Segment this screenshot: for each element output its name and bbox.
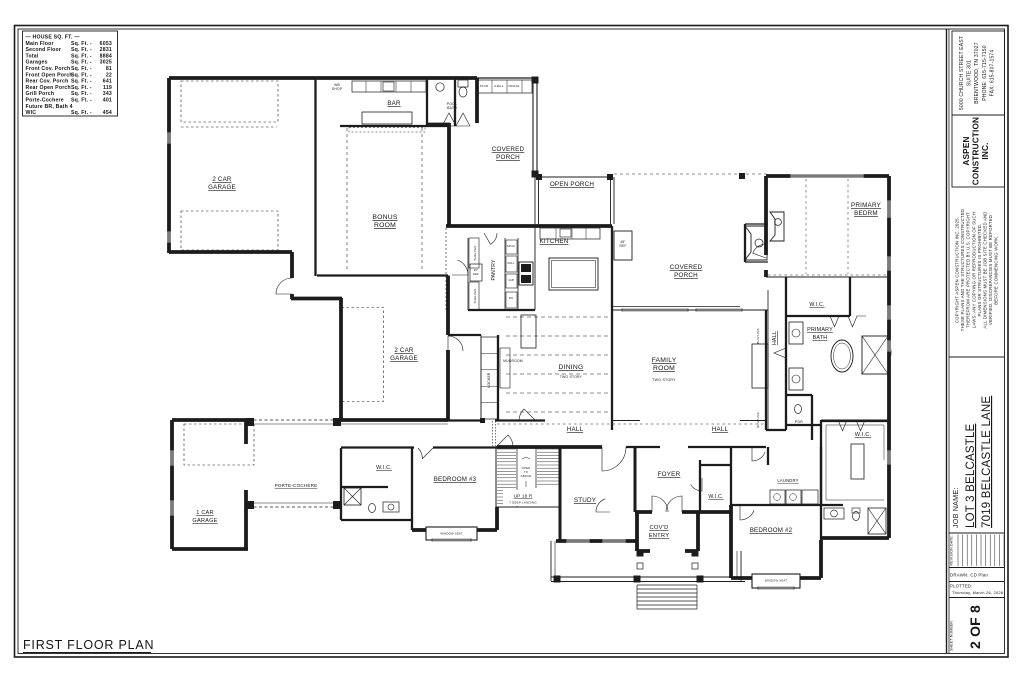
svg-text:Front Cov. Porch: Front Cov. Porch [26,66,71,72]
svg-text:PRIMARY: PRIMARY [851,202,882,209]
svg-text:81: 81 [106,66,112,72]
svg-text:2 CAR: 2 CAR [394,347,414,354]
svg-text:CAB: CAB [508,279,514,282]
svg-text:FAMILY: FAMILY [652,357,677,364]
svg-text:Sq. Ft. -: Sq. Ft. - [71,98,92,104]
svg-text:PLOTTED:: PLOTTED: [950,584,973,589]
svg-text:Sq. Ft. -: Sq. Ft. - [71,91,92,97]
svg-text:PHONE: 615-715-7150: PHONE: 615-715-7150 [982,45,988,101]
svg-text:PIE: PIE [509,297,514,300]
svg-text:GARAGE: GARAGE [192,518,217,524]
svg-text:SHELVES: SHELVES [473,245,477,260]
svg-text:Rear Open Porch: Rear Open Porch [26,85,71,91]
svg-text:22: 22 [106,72,112,78]
svg-text:454: 454 [103,110,112,116]
svg-text:641: 641 [103,79,112,85]
svg-text:2 OF 8: 2 OF 8 [967,605,983,649]
svg-text:ENTRY: ENTRY [649,533,670,539]
svg-text:THEREFROM ARE PROTECTED BY U.S: THEREFROM ARE PROTECTED BY U.S. COPYRIGH… [966,212,971,328]
svg-text:ALL DIMENSIONS MUST BE JOB SIT: ALL DIMENSIONS MUST BE JOB SITE CHECKED … [983,211,988,328]
svg-text:— HOUSE SQ. FT. —: — HOUSE SQ. FT. — [26,35,81,41]
svg-text:SUITE 301: SUITE 301 [967,60,973,86]
svg-text:LOCKER: LOCKER [487,372,491,387]
svg-text:6053: 6053 [100,41,112,47]
svg-text:Porte-Cochere: Porte-Cochere [26,98,64,104]
svg-text:WINDOW SEAT: WINDOW SEAT [765,579,787,583]
svg-text:SHEET NUMBER:: SHEET NUMBER: [950,620,954,651]
svg-text:ROOM: ROOM [374,222,396,229]
svg-text:THESE PLANS AND THE STRUCTURES: THESE PLANS AND THE STRUCTURES CONSTRUCT… [960,209,965,331]
svg-text:TWO STORY: TWO STORY [652,378,676,382]
svg-text:COVERED: COVERED [492,146,525,153]
svg-text:GARAGE: GARAGE [208,184,236,191]
svg-text:DRAWN: CD Plan: DRAWN: CD Plan [950,573,988,578]
svg-text:Sq. Ft. -: Sq. Ft. - [71,110,92,116]
svg-text:WINDOW SEAT: WINDOW SEAT [440,532,462,536]
svg-text:BUILT-INS: BUILT-INS [756,412,760,427]
svg-text:Sq. Ft. -: Sq. Ft. - [71,47,92,53]
svg-text:Front Open Porch: Front Open Porch [26,72,73,78]
svg-text:FRIDGE: FRIDGE [509,84,520,88]
svg-text:STOR: STOR [480,84,489,88]
svg-text:Future BR, Bath 4: Future BR, Bath 4 [26,104,73,110]
svg-text:Second Floor: Second Floor [26,47,62,53]
svg-text:BAR: BAR [387,100,401,107]
svg-text:HALL: HALL [712,426,729,433]
svg-text:ASPEN: ASPEN [962,136,971,165]
svg-text:FIRST FLOOR PLAN: FIRST FLOOR PLAN [23,638,154,652]
svg-text:WALL: WALL [507,262,515,265]
svg-text:PANTRY: PANTRY [491,259,497,280]
svg-text:COV’D: COV’D [649,525,668,531]
svg-text:2831: 2831 [100,47,112,53]
svg-text:BEDROOM #3: BEDROOM #3 [434,476,477,483]
svg-text:PORTE-COCHERE: PORTE-COCHERE [275,483,318,488]
svg-text:8884: 8884 [100,53,112,59]
svg-text:LOT 3 BELCASTLE: LOT 3 BELCASTLE [965,423,977,528]
svg-text:Sq. Ft. -: Sq. Ft. - [71,85,92,91]
svg-text:KITCHEN: KITCHEN [539,238,568,245]
svg-text:Total: Total [26,53,39,59]
svg-text:Main Floor: Main Floor [26,41,54,47]
svg-text:401: 401 [103,98,112,104]
svg-text:SHOP: SHOP [332,87,343,91]
svg-text:COVERED: COVERED [670,264,703,271]
svg-text:Sq. Ft. -: Sq. Ft. - [71,72,92,78]
svg-text:BEDRM: BEDRM [854,210,878,217]
svg-text:VERIFIED. DISCREPANCIES MUST B: VERIFIED. DISCREPANCIES MUST BE REPORTED [988,215,993,325]
svg-text:LAUNDRY: LAUNDRY [777,478,798,483]
svg-text:BATH: BATH [447,106,457,110]
svg-text:1 CAR: 1 CAR [196,510,213,516]
svg-text:Sq. Ft. -: Sq. Ft. - [71,79,92,85]
svg-text:2 CAR: 2 CAR [212,176,232,183]
svg-text:MUDROOM: MUDROOM [503,359,523,363]
svg-text:COPYRIGHT ASPEN CONSTRUCTION I: COPYRIGHT ASPEN CONSTRUCTION INC. 2025. [955,217,960,323]
svg-text:PORCH: PORCH [496,154,520,161]
svg-text:FOYER: FOYER [658,471,681,478]
svg-text:SPICE: SPICE [507,245,515,248]
svg-text:OPEN PORCH: OPEN PORCH [550,181,595,188]
svg-text:BEDROOM #2: BEDROOM #2 [750,527,793,534]
svg-text:119: 119 [103,85,112,91]
svg-text:7 DEEP LANDING: 7 DEEP LANDING [509,501,537,505]
svg-text:GARAGE: GARAGE [390,355,418,362]
svg-text:BONUS: BONUS [372,214,397,221]
svg-text:Thursday, March 26, 2026: Thursday, March 26, 2026 [952,590,1004,595]
svg-text:STUDY: STUDY [574,497,597,504]
svg-text:FAX: 615-807-1574: FAX: 615-807-1574 [989,50,995,97]
svg-text:UP 18 R: UP 18 R [514,494,533,499]
svg-text:WIC: WIC [26,110,37,116]
svg-text:W.I.C.: W.I.C. [855,432,872,438]
svg-text:DINING: DINING [559,364,584,371]
svg-text:Grill Porch: Grill Porch [26,91,55,97]
svg-text:Rear Cov. Porch: Rear Cov. Porch [26,79,69,85]
svg-text:Sq. Ft. -: Sq. Ft. - [71,41,92,47]
svg-text:SHELVES: SHELVES [473,288,477,303]
svg-text:BEFORE COMMENCING WORK.: BEFORE COMMENCING WORK. [994,235,999,305]
svg-text:INC.: INC. [981,142,990,159]
svg-text:LAWS. ANY COPYING OR REPRODUCT: LAWS. ANY COPYING OR REPRODUCTION OF SUC… [971,212,976,328]
svg-text:HALL: HALL [567,426,584,433]
svg-text:CONSTRUCTION: CONSTRUCTION [972,117,981,185]
svg-text:W.I.C.: W.I.C. [809,302,824,308]
svg-text:BRENTWOOD, TN 37027: BRENTWOOD, TN 37027 [974,42,980,104]
svg-text:HALL: HALL [772,331,778,345]
svg-text:Sq. Ft. -: Sq. Ft. - [71,60,92,66]
svg-text:REF: REF [620,244,627,248]
svg-text:TWO STORY: TWO STORY [560,375,583,379]
svg-text:REF: REF [473,272,479,276]
svg-text:ROOM: ROOM [653,365,675,372]
svg-text:ABOVE: ABOVE [521,474,532,478]
svg-text:PDR: PDR [795,420,803,424]
svg-text:Garages: Garages [26,60,48,66]
svg-text:PLANS OR STRUCTURES IS PROHIBI: PLANS OR STRUCTURES IS PROHIBITED. [977,224,982,317]
svg-text:343: 343 [103,91,112,97]
svg-text:W.I.C.: W.I.C. [708,494,723,500]
svg-text:BUILT-INS: BUILT-INS [756,328,760,343]
svg-text:PORCH: PORCH [674,272,698,279]
svg-text:3025: 3025 [100,60,112,66]
svg-text:Sq. Ft. -: Sq. Ft. - [71,53,92,59]
svg-text:GRILL: GRILL [494,84,504,88]
svg-text:PRIMARY: PRIMARY [807,327,833,333]
svg-text:W.I.C.: W.I.C. [376,465,392,471]
svg-text:5000 CHURCH STREET EAST: 5000 CHURCH STREET EAST [959,36,965,110]
svg-text:REVISION DATE:: REVISION DATE: [950,535,954,566]
svg-text:7019 BELCASTLE LANE: 7019 BELCASTLE LANE [981,396,993,528]
svg-text:Sq. Ft. -: Sq. Ft. - [71,66,92,72]
svg-text:JOB NAME:: JOB NAME: [951,487,960,528]
svg-text:BATH: BATH [813,335,828,341]
